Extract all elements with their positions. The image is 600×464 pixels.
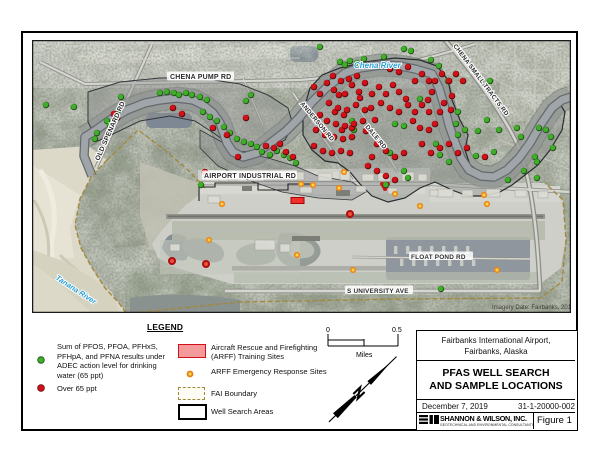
- svg-text:Chena River: Chena River: [354, 61, 402, 70]
- svg-text:S UNIVERSITY AVE: S UNIVERSITY AVE: [347, 288, 409, 295]
- svg-text:Imagery Date: Fairbanks, 2019: Imagery Date: Fairbanks, 2019: [492, 305, 571, 311]
- svg-text:FLOAT POND RD: FLOAT POND RD: [411, 254, 466, 261]
- svg-text:AIRPORT INDUSTRIAL RD: AIRPORT INDUSTRIAL RD: [204, 173, 296, 180]
- svg-text:0.5: 0.5: [392, 327, 402, 334]
- svg-text:CHENA PUMP RD: CHENA PUMP RD: [170, 74, 231, 81]
- svg-text:0: 0: [326, 327, 330, 334]
